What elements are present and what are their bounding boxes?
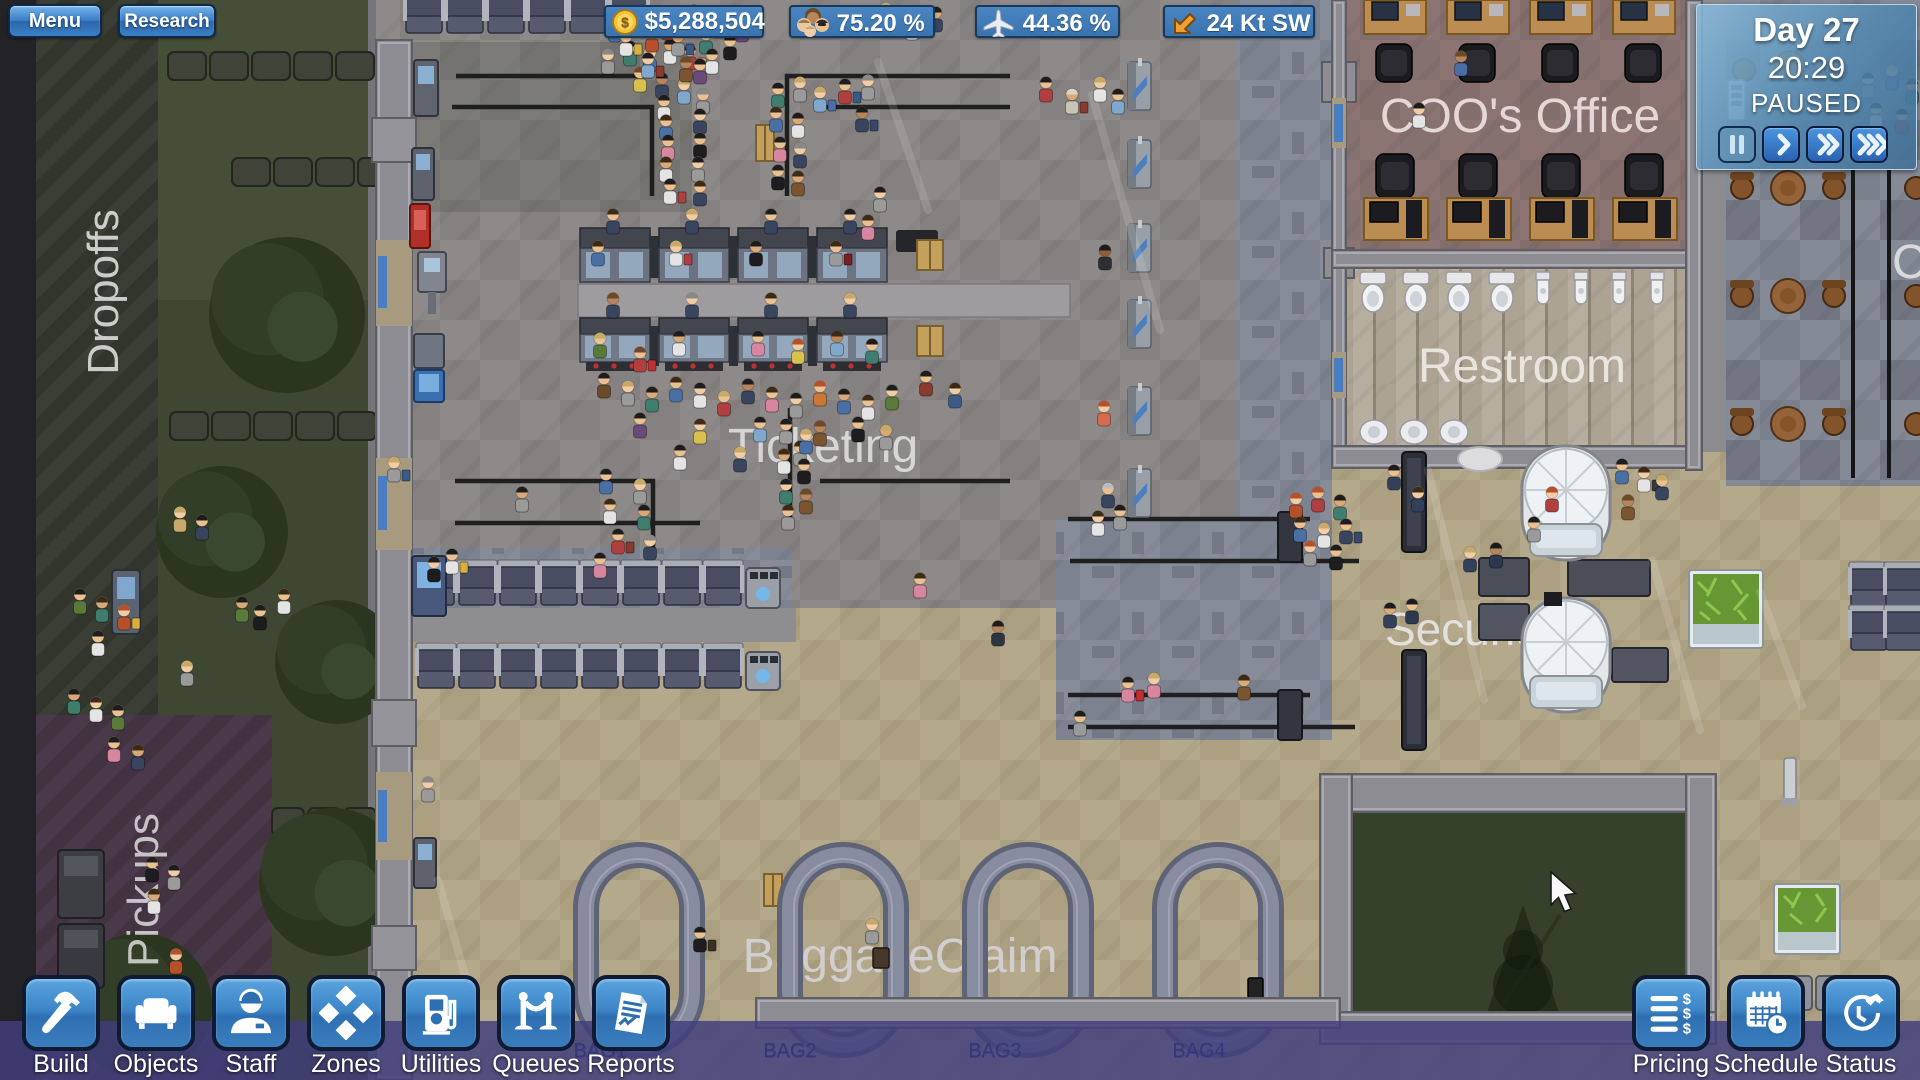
svg-text:$: $: [1683, 992, 1691, 1008]
svg-text:$: $: [1683, 1007, 1691, 1023]
svg-text:Restroom: Restroom: [1418, 340, 1626, 393]
svg-text:Pickups: Pickups: [119, 813, 168, 967]
svg-text:Dropoffs: Dropoffs: [79, 209, 128, 375]
svg-text:$: $: [621, 14, 629, 30]
svg-text:$: $: [1683, 1021, 1691, 1037]
svg-text:C: C: [1892, 236, 1920, 289]
